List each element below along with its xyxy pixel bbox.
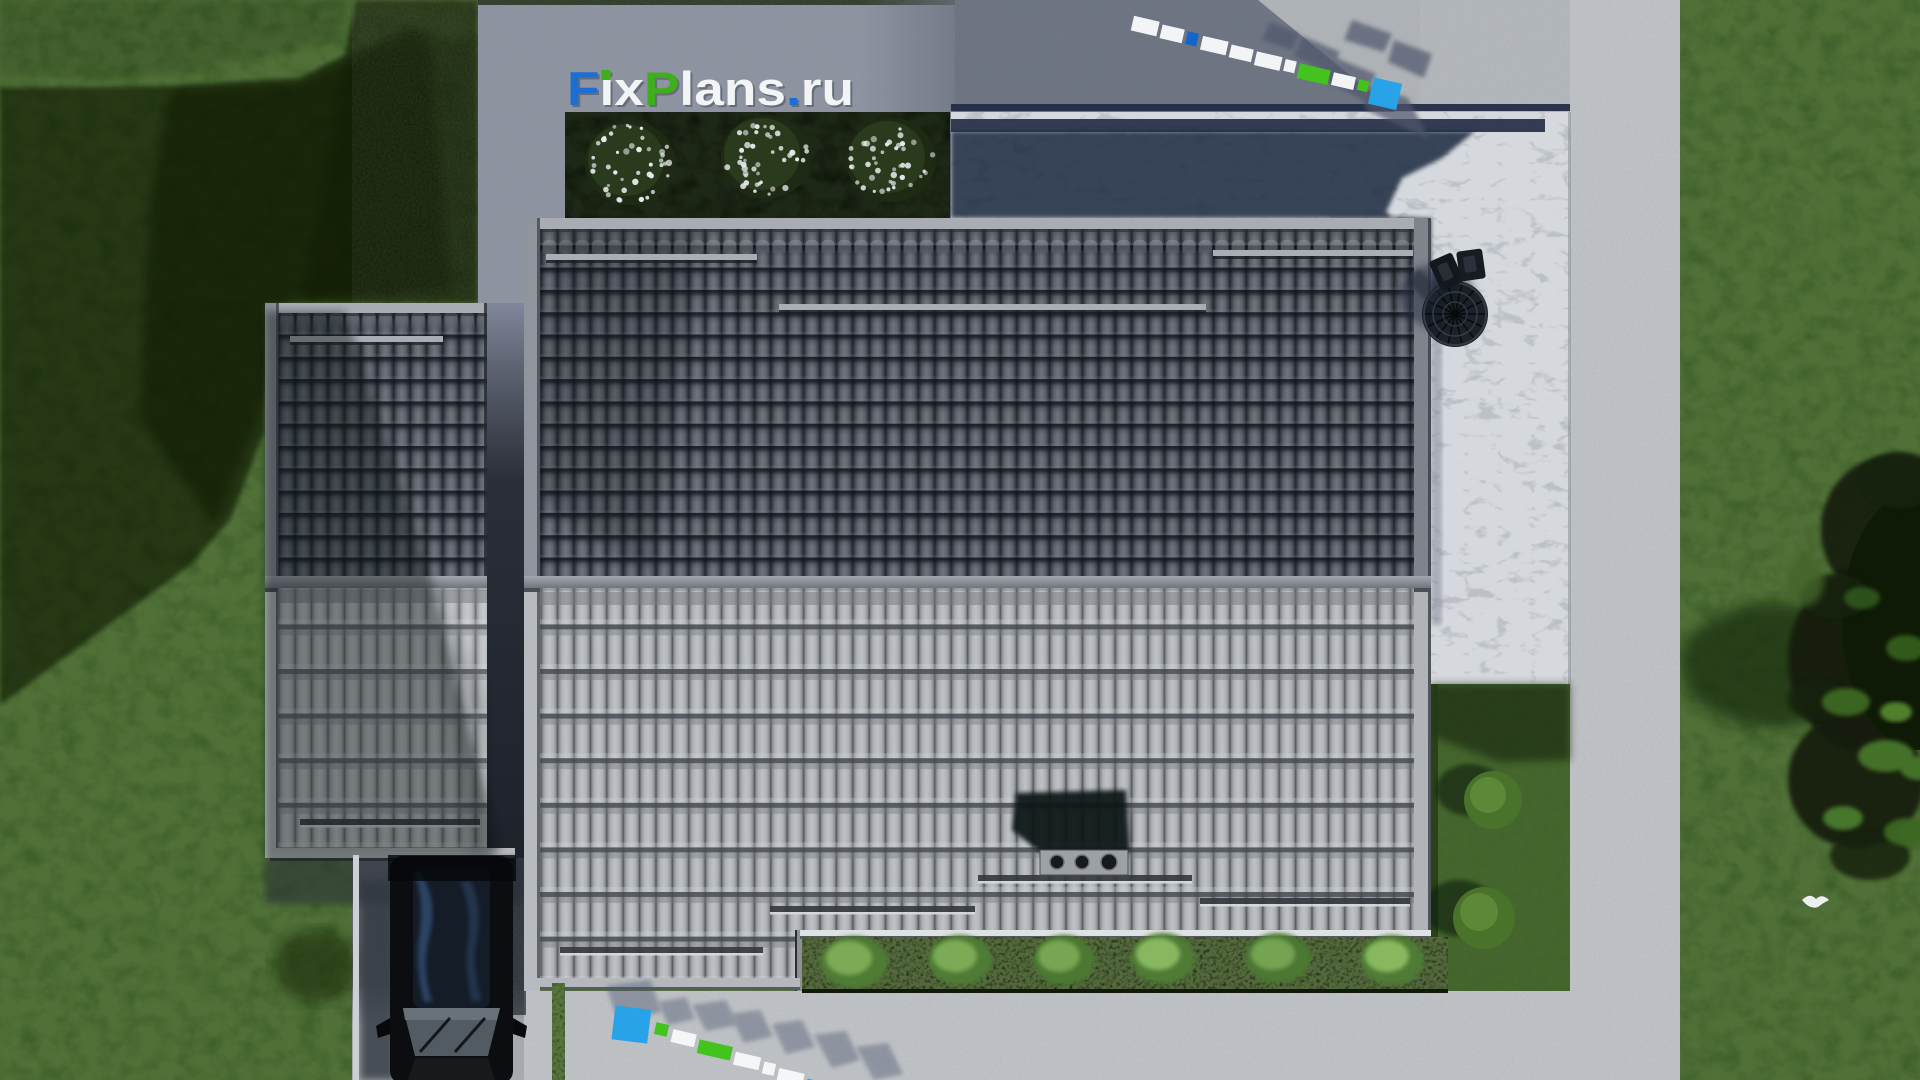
svg-text:FixPlans.ru: FixPlans.ru bbox=[567, 62, 854, 115]
